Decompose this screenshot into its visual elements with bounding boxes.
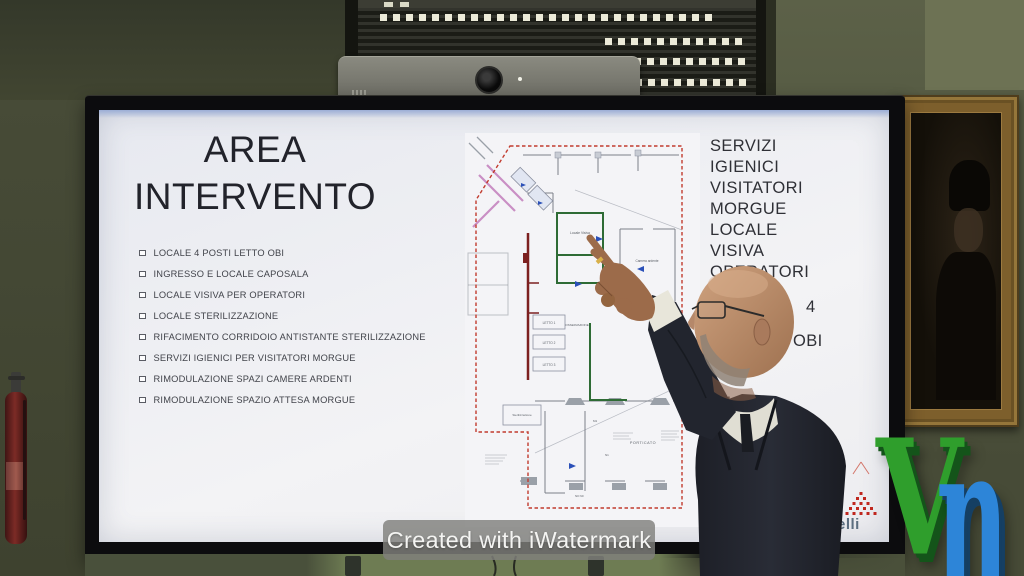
watermark-caption: Created with iWatermark	[383, 520, 655, 560]
presenter-pointing-hand	[590, 238, 655, 321]
ear	[754, 319, 770, 345]
meeting-room-photo: AREA INTERVENTO LOCALE 4 POSTI LETTO OBI…	[0, 0, 1024, 576]
channel-logo-letter-n: n	[936, 418, 1009, 576]
head-highlight	[708, 270, 768, 298]
presenter-person	[0, 0, 1024, 576]
